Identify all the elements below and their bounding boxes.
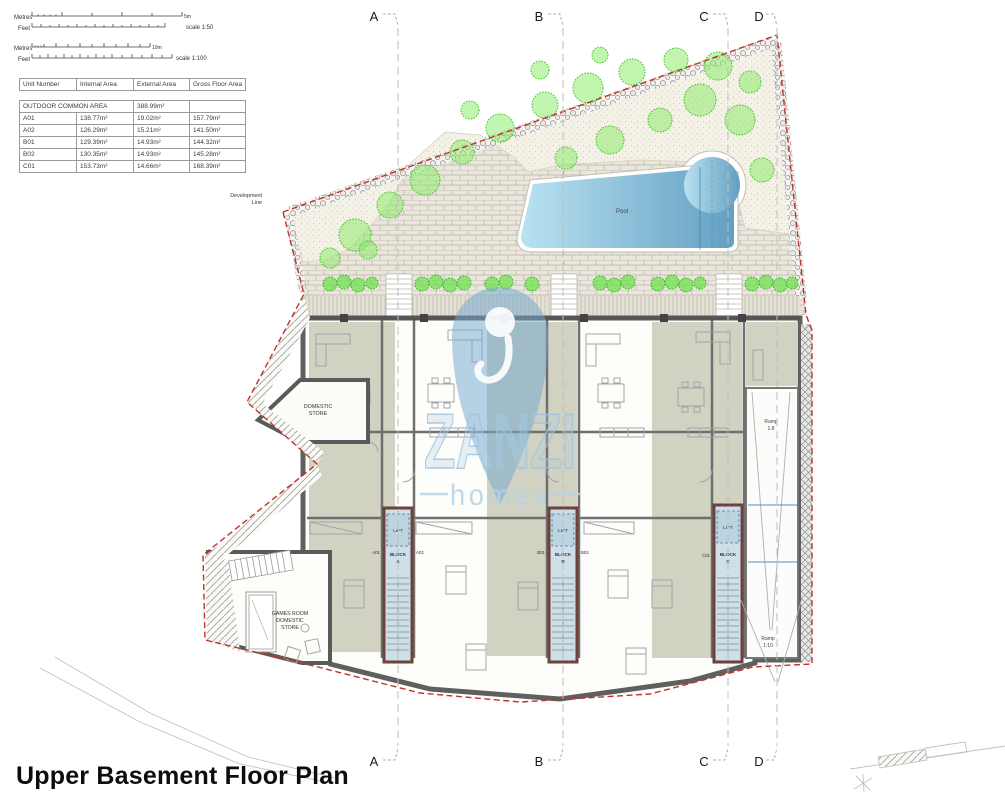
ramp-upper-label-2: 1:8 bbox=[768, 426, 775, 432]
table-cell: 141.50m² bbox=[190, 125, 246, 137]
area-table-body: OUTDOOR COMMON AREA388.99m²A01138.77m²19… bbox=[20, 101, 246, 173]
grid-letter-d-bottom: D bbox=[754, 754, 763, 769]
table-cell: 157.79m² bbox=[190, 113, 246, 125]
unit-tag-b02: B02 bbox=[581, 550, 589, 555]
grid-letter-a-top: A bbox=[370, 9, 379, 24]
core-block-a: LIFT BLOCK A bbox=[384, 508, 412, 662]
table-header-cell: Internal Area bbox=[77, 79, 134, 91]
table-cell: A02 bbox=[20, 125, 77, 137]
unit-tag-a01: A01 bbox=[372, 550, 380, 555]
games-room-label-1: GAMES ROOM bbox=[272, 611, 308, 617]
table-cell: 14.93m² bbox=[134, 137, 190, 149]
table-cell: 19.02m² bbox=[134, 113, 190, 125]
table-row: OUTDOOR COMMON AREA388.99m² bbox=[20, 101, 246, 113]
domestic-store-label-1: DOMESTIC bbox=[304, 404, 333, 410]
watermark-name: ZANZI bbox=[424, 397, 576, 485]
domestic-store-label-2: STORE bbox=[309, 411, 328, 417]
table-cell: 153.73m² bbox=[77, 161, 134, 173]
table-cell: C01 bbox=[20, 161, 77, 173]
scale2-ratio-label: scale 1:100 bbox=[176, 56, 207, 62]
games-room-label-2: DOMESTIC bbox=[276, 618, 304, 624]
grid-letter-b-bottom: B bbox=[535, 754, 544, 769]
area-table-header: Unit NumberInternal AreaExternal AreaGro… bbox=[19, 78, 246, 91]
grid-letter-c-top: C bbox=[699, 9, 708, 24]
table-cell: 388.99m² bbox=[134, 101, 190, 113]
pool-label: Pool bbox=[616, 209, 628, 215]
table-header-cell: External Area bbox=[134, 79, 190, 91]
scale-bar-1-50: Metres 5m Feet scale 1:50 bbox=[14, 12, 214, 32]
table-cell: 144.32m² bbox=[190, 137, 246, 149]
table-header-cell: Unit Number bbox=[20, 79, 77, 91]
scale1-metres-label: Metres bbox=[14, 15, 32, 21]
grid-letter-c-bottom: C bbox=[699, 754, 708, 769]
watermark-tagline: homes bbox=[450, 479, 550, 512]
scale2-metres-label: Metres bbox=[14, 46, 32, 52]
table-cell: 126.29m² bbox=[77, 125, 134, 137]
development-line-label-2: Line bbox=[252, 200, 262, 206]
domestic-store: DOMESTIC STORE bbox=[258, 380, 368, 442]
games-room-label-3: STORE bbox=[281, 625, 299, 631]
table-cell: A01 bbox=[20, 113, 77, 125]
grid-letter-d-top: D bbox=[754, 9, 763, 24]
table-cell: 129.39m² bbox=[77, 137, 134, 149]
unit-tag-b01: B01 bbox=[537, 550, 545, 555]
table-cell: B02 bbox=[20, 149, 77, 161]
table-row: B01129.39m²14.93m²144.32m² bbox=[20, 137, 246, 149]
table-cell bbox=[190, 101, 246, 113]
unit-tag-c01: C01 bbox=[702, 553, 711, 558]
scale1-end-label: 5m bbox=[184, 14, 191, 20]
table-cell: 14.66m² bbox=[134, 161, 190, 173]
ramp-upper-label-1: Ramp bbox=[764, 419, 778, 425]
floor-plan-sheet: Unit NumberInternal AreaExternal AreaGro… bbox=[0, 0, 1005, 800]
scale-bar-1-100: Metres 10m Feet scale 1:100 bbox=[14, 43, 207, 63]
table-row: C01153.73m²14.66m²168.39m² bbox=[20, 161, 246, 173]
grid-letter-b-top: B bbox=[535, 9, 544, 24]
right-boundary-hatch bbox=[801, 324, 812, 662]
table-row: B02130.35m²14.93m²145.28m² bbox=[20, 149, 246, 161]
table-cell: 130.35m² bbox=[77, 149, 134, 161]
table-cell: 145.28m² bbox=[190, 149, 246, 161]
area-table: OUTDOOR COMMON AREA388.99m²A01138.77m²19… bbox=[19, 100, 246, 173]
table-row: A01138.77m²19.02m²157.79m² bbox=[20, 113, 246, 125]
scale1-ratio-label: scale 1:50 bbox=[186, 25, 214, 31]
ramp-lower-label-1: Ramp bbox=[761, 636, 775, 642]
core-block-b: LIFT BLOCK B bbox=[549, 508, 577, 662]
drawing-title: Upper Basement Floor Plan bbox=[16, 762, 349, 791]
table-cell: B01 bbox=[20, 137, 77, 149]
table-cell: 15.21m² bbox=[134, 125, 190, 137]
table-cell: OUTDOOR COMMON AREA bbox=[20, 101, 134, 113]
table-cell: 138.77m² bbox=[77, 113, 134, 125]
grid-letter-a-bottom: A bbox=[370, 754, 379, 769]
table-cell: 168.39m² bbox=[190, 161, 246, 173]
ramp-lower-label-2: 1:10 bbox=[763, 643, 773, 649]
table-cell: 14.93m² bbox=[134, 149, 190, 161]
table-row: A02126.29m²15.21m²141.50m² bbox=[20, 125, 246, 137]
table-header-cell: Gross Floor Area bbox=[190, 79, 246, 91]
scale2-feet-label: Feet bbox=[18, 57, 30, 63]
unit-tag-a02: A02 bbox=[416, 550, 424, 555]
area-table-header-row: Unit NumberInternal AreaExternal AreaGro… bbox=[20, 79, 246, 91]
scale1-feet-label: Feet bbox=[18, 26, 30, 32]
scale2-end-label: 10m bbox=[152, 45, 162, 51]
development-line-label-1: Development bbox=[230, 193, 262, 199]
